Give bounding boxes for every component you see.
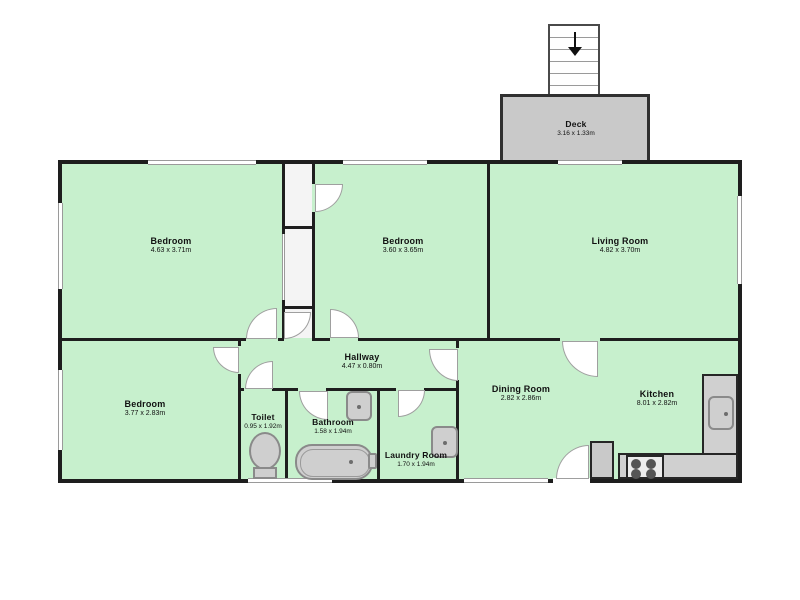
room-name: Dining Room — [492, 384, 550, 394]
room-dims: 8.01 x 2.82m — [637, 400, 677, 407]
room-name: Toilet — [244, 412, 282, 422]
bathtub-drain — [349, 460, 353, 464]
wall-segment — [312, 164, 315, 184]
bathtub-inner — [300, 449, 370, 477]
room-dims: 4.82 x 3.70m — [592, 247, 649, 254]
kitchen-cabinet — [590, 441, 614, 479]
stairs-down-arrowhead-icon — [568, 47, 582, 56]
bathtub — [295, 444, 373, 480]
room-name: Laundry Room — [385, 450, 447, 460]
wall-segment — [424, 388, 458, 391]
room-label-living-room: Living Room 4.82 x 3.70m — [592, 236, 649, 254]
stair-tread — [550, 73, 598, 74]
room-dims: 4.47 x 0.80m — [342, 363, 382, 370]
sink-drain — [724, 412, 728, 416]
stove-burner — [646, 459, 656, 469]
room-label-bathroom: Bathroom 1.58 x 1.94m — [312, 417, 354, 435]
room-label-bedroom-3: Bedroom 3.77 x 2.83m — [125, 399, 166, 417]
wall-segment — [312, 212, 315, 338]
room-label-laundry-room: Laundry Room 1.70 x 1.94m — [385, 450, 447, 468]
house-outline — [58, 160, 742, 483]
window — [343, 160, 427, 165]
wall-segment — [358, 338, 560, 341]
deck-dims: 3.16 x 1.33m — [557, 130, 595, 137]
wall-segment — [285, 306, 312, 309]
room-dims: 1.58 x 1.94m — [312, 428, 354, 435]
deck-name: Deck — [557, 119, 595, 129]
wall-segment — [600, 338, 738, 341]
deck-door-window — [558, 160, 622, 165]
stairs — [548, 24, 600, 96]
stairs-down-arrow-icon — [574, 32, 576, 48]
wall-segment — [62, 338, 246, 341]
window — [58, 203, 63, 289]
room-dims: 4.63 x 3.71m — [151, 247, 192, 254]
wall-segment — [238, 374, 241, 479]
stair-tread — [550, 85, 598, 86]
wall-segment — [238, 338, 241, 346]
stove — [626, 455, 664, 479]
room-label-kitchen: Kitchen 8.01 x 2.82m — [637, 389, 677, 407]
window — [464, 478, 548, 483]
wall-segment — [377, 388, 380, 479]
stair-tread — [550, 61, 598, 62]
room-name: Bedroom — [125, 399, 166, 409]
floorplan-page: Deck 3.16 x 1.33m — [0, 0, 800, 600]
window — [58, 370, 63, 450]
window — [737, 196, 742, 284]
footer: ARIZTO 2 Birch place Whanganui, Penny li… — [0, 528, 800, 588]
sink-drain — [443, 441, 447, 445]
wall-segment — [312, 338, 330, 341]
room-name: Bedroom — [151, 236, 192, 246]
stove-burner — [631, 469, 641, 479]
wall-segment — [285, 226, 312, 229]
wall-segment — [487, 164, 490, 338]
closet-slider — [282, 234, 285, 300]
room-label-dining-room: Dining Room 2.82 x 2.86m — [492, 384, 550, 402]
sink-drain — [357, 405, 361, 409]
room-name: Bedroom — [383, 236, 424, 246]
room-dims: 2.82 x 2.86m — [492, 395, 550, 402]
window — [148, 160, 256, 165]
room-dims: 0.95 x 1.92m — [244, 423, 282, 430]
room-label-hallway: Hallway 4.47 x 0.80m — [342, 352, 382, 370]
room-name: Hallway — [342, 352, 382, 362]
room-label-bedroom-2: Bedroom 3.60 x 3.65m — [383, 236, 424, 254]
bathtub-faucet — [368, 453, 377, 469]
room-name: Living Room — [592, 236, 649, 246]
room-label-bedroom-1: Bedroom 4.63 x 3.71m — [151, 236, 192, 254]
room-name: Bathroom — [312, 417, 354, 427]
room-name: Kitchen — [637, 389, 677, 399]
room-label-toilet: Toilet 0.95 x 1.92m — [244, 412, 282, 430]
toilet-tank — [253, 467, 277, 479]
wall-segment — [285, 388, 288, 479]
room-dims: 3.60 x 3.65m — [383, 247, 424, 254]
wall-segment — [456, 338, 459, 348]
room-dims: 3.77 x 2.83m — [125, 410, 166, 417]
stove-burner — [646, 469, 656, 479]
stove-burner — [631, 459, 641, 469]
toilet-bowl — [249, 432, 281, 470]
room-label-deck: Deck 3.16 x 1.33m — [557, 119, 595, 137]
kitchen-sink — [708, 396, 734, 430]
room-dims: 1.70 x 1.94m — [385, 461, 447, 468]
